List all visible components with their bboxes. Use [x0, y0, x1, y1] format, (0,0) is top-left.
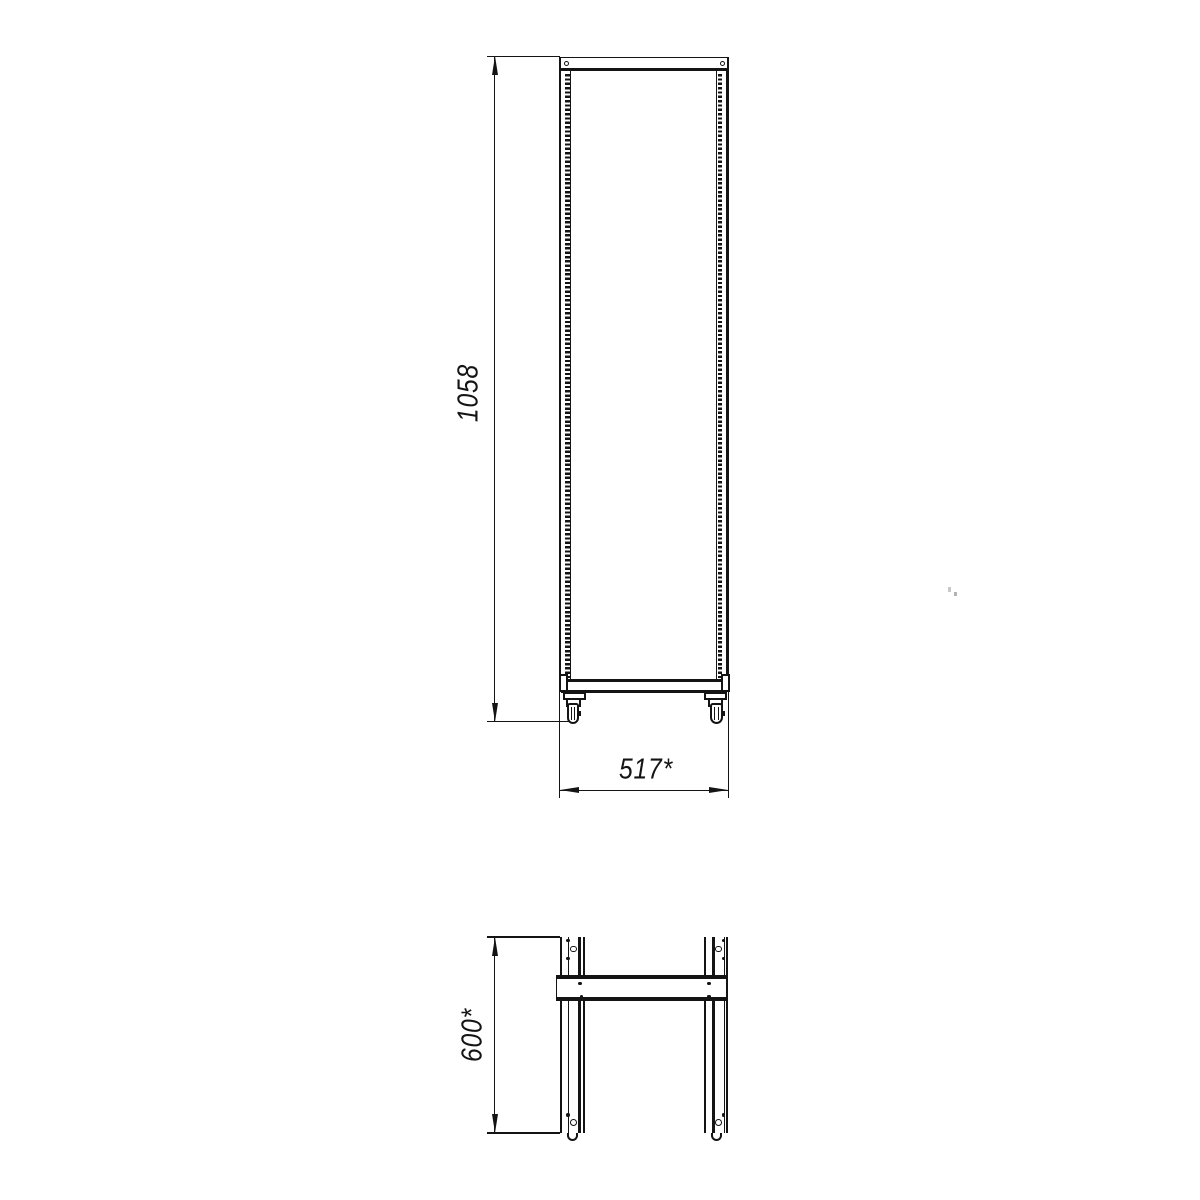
- post-rivet: [722, 1113, 726, 1117]
- caster-tab-left: [567, 1133, 578, 1141]
- arrowhead-down-icon: [492, 1114, 498, 1133]
- post-hole: [715, 1119, 722, 1126]
- post-rivet: [566, 939, 570, 943]
- depth-post-left: [560, 937, 585, 1133]
- post-channel-line: [712, 937, 715, 1133]
- bar-rivet: [578, 982, 582, 986]
- dimension-depth: 600*: [0, 0, 1200, 1200]
- depth-post-right: [704, 937, 729, 1133]
- bar-rivet: [707, 982, 711, 986]
- post-hole: [570, 1119, 577, 1126]
- bar-rivet: [580, 995, 584, 999]
- dimension-label-depth: 600*: [458, 1008, 487, 1062]
- post-hole: [715, 946, 722, 953]
- post-hole: [570, 946, 577, 953]
- extension-line-bottom: [487, 1132, 560, 1133]
- post-rivet: [566, 1113, 570, 1117]
- scan-speck: [948, 587, 951, 592]
- technical-drawing-canvas: 1058: [0, 0, 1200, 1200]
- arrowhead-up-icon: [492, 937, 498, 956]
- scan-speck: [954, 592, 957, 596]
- post-channel-line: [724, 937, 725, 1133]
- cross-bar: [556, 975, 729, 1001]
- dimension-line: [494, 937, 495, 1133]
- bar-rivet: [707, 995, 711, 999]
- rack-top-view: 600*: [0, 0, 1200, 1200]
- post-rivet: [566, 957, 570, 961]
- post-channel-line: [568, 937, 569, 1133]
- extension-line-top: [487, 936, 560, 937]
- post-channel-line: [578, 937, 581, 1133]
